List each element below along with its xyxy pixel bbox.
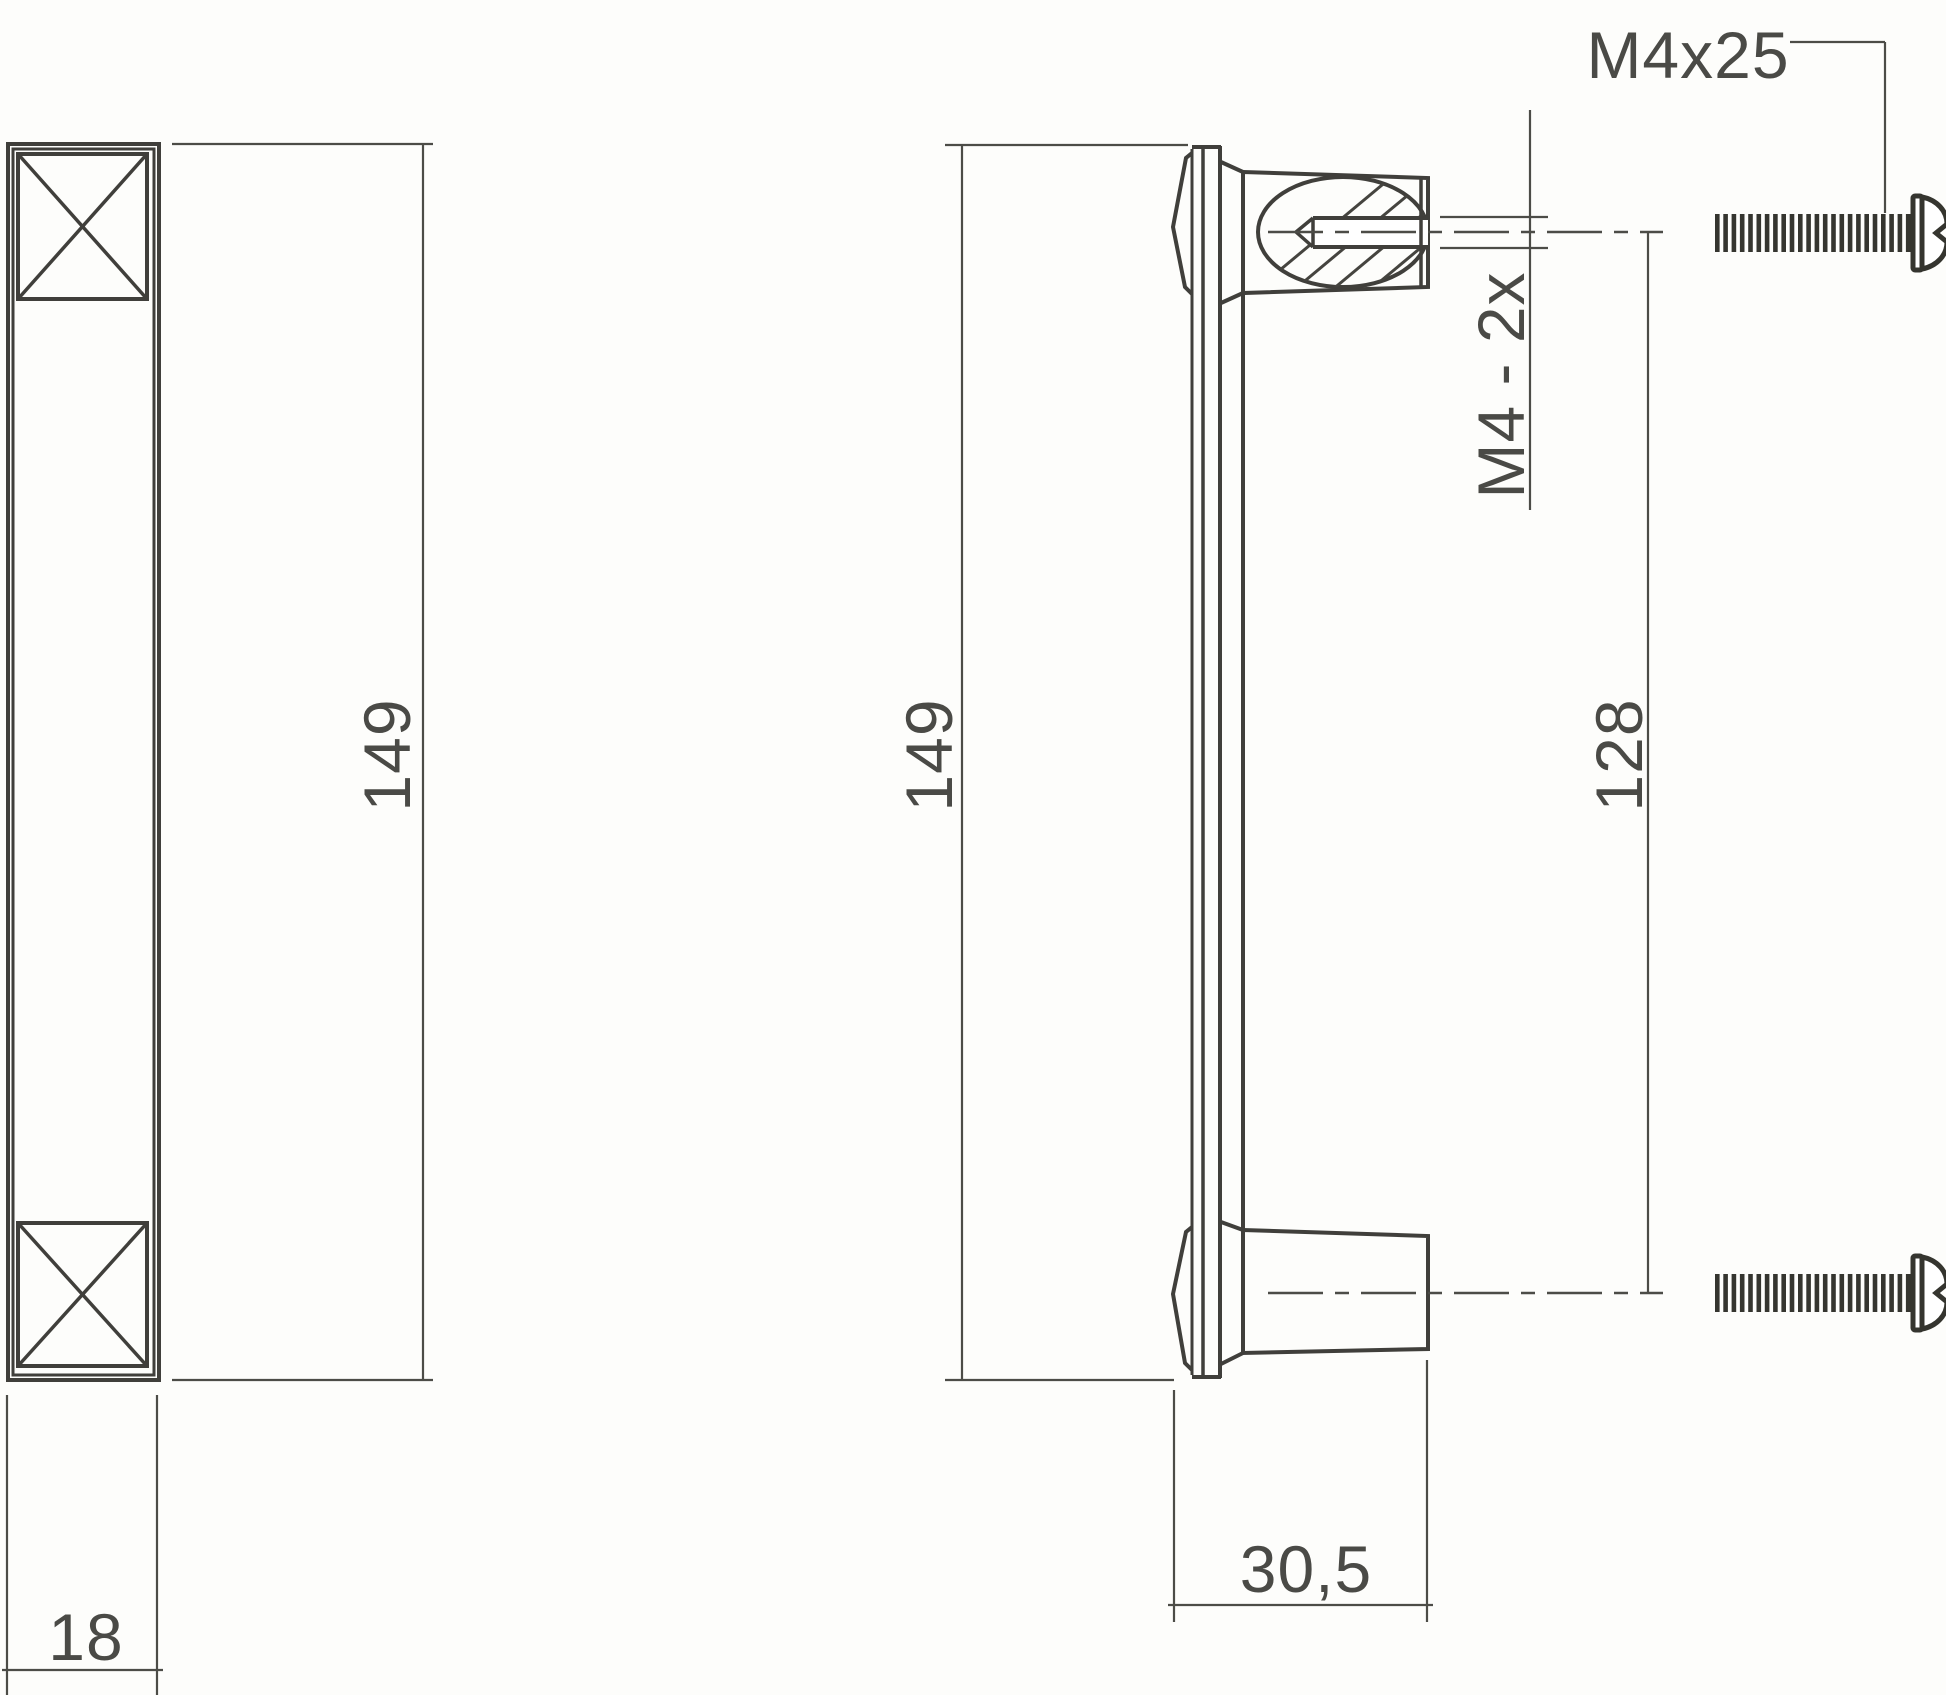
dim-hole-spacing-label: 128 xyxy=(1582,698,1656,811)
technical-drawing: 149 18 xyxy=(0,0,1946,1695)
dim-front-width-label: 18 xyxy=(48,1600,123,1674)
dim-post-depth-label: 30,5 xyxy=(1240,1532,1372,1606)
drawing-canvas: 149 18 xyxy=(0,0,1946,1695)
background xyxy=(0,0,1946,1695)
thread-note-label: M4 - 2x xyxy=(1464,271,1538,498)
dim-front-height-label: 149 xyxy=(350,698,424,811)
dim-side-height-label: 149 xyxy=(892,698,966,811)
screw-spec-label: M4x25 xyxy=(1586,18,1789,92)
